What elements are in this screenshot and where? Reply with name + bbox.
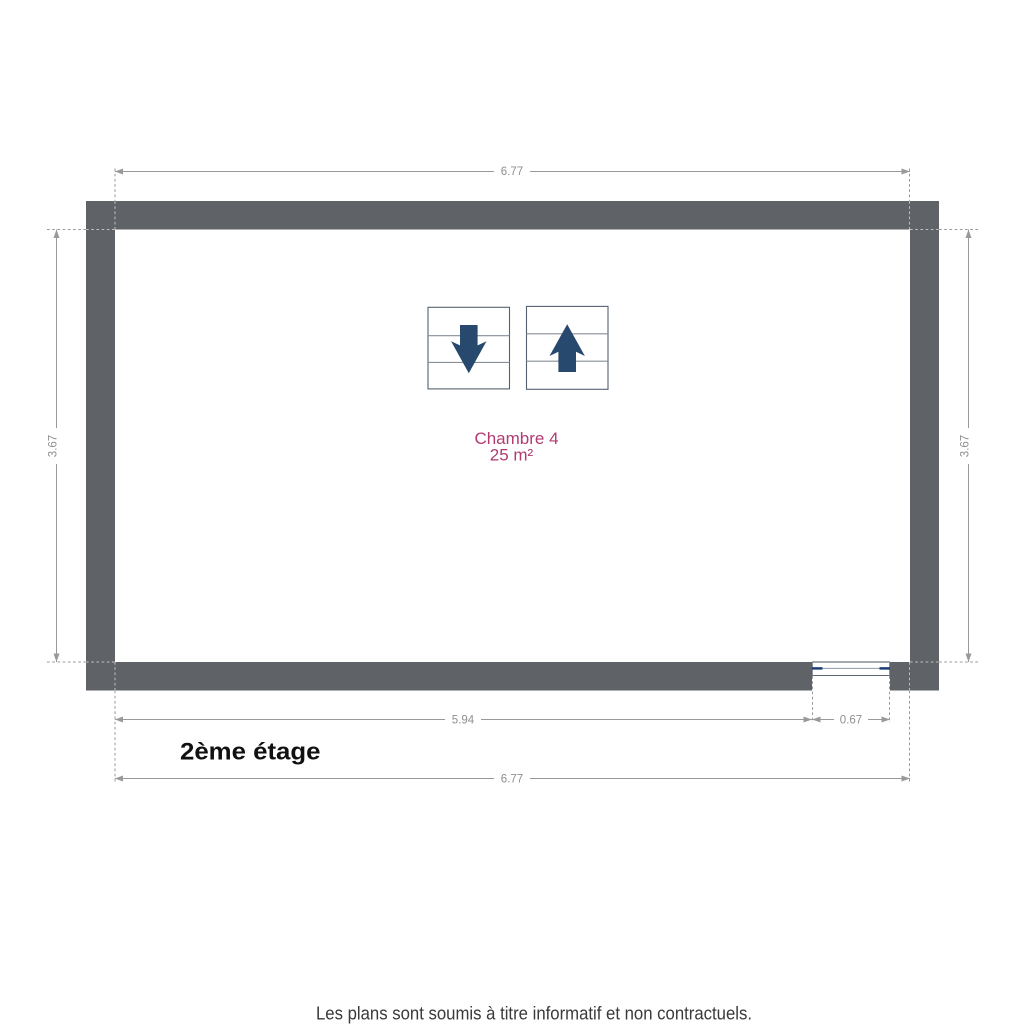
svg-text:6.77: 6.77 [501,166,523,178]
svg-text:25 m²: 25 m² [490,446,534,465]
svg-text:3.67: 3.67 [960,435,972,457]
svg-text:0.67: 0.67 [840,715,862,727]
svg-text:5.94: 5.94 [452,715,475,727]
svg-text:3.67: 3.67 [48,435,60,457]
svg-text:Les plans sont soumis à titre: Les plans sont soumis à titre informatif… [316,1004,752,1024]
svg-text:6.77: 6.77 [501,774,523,786]
svg-text:2ème étage: 2ème étage [180,739,321,766]
